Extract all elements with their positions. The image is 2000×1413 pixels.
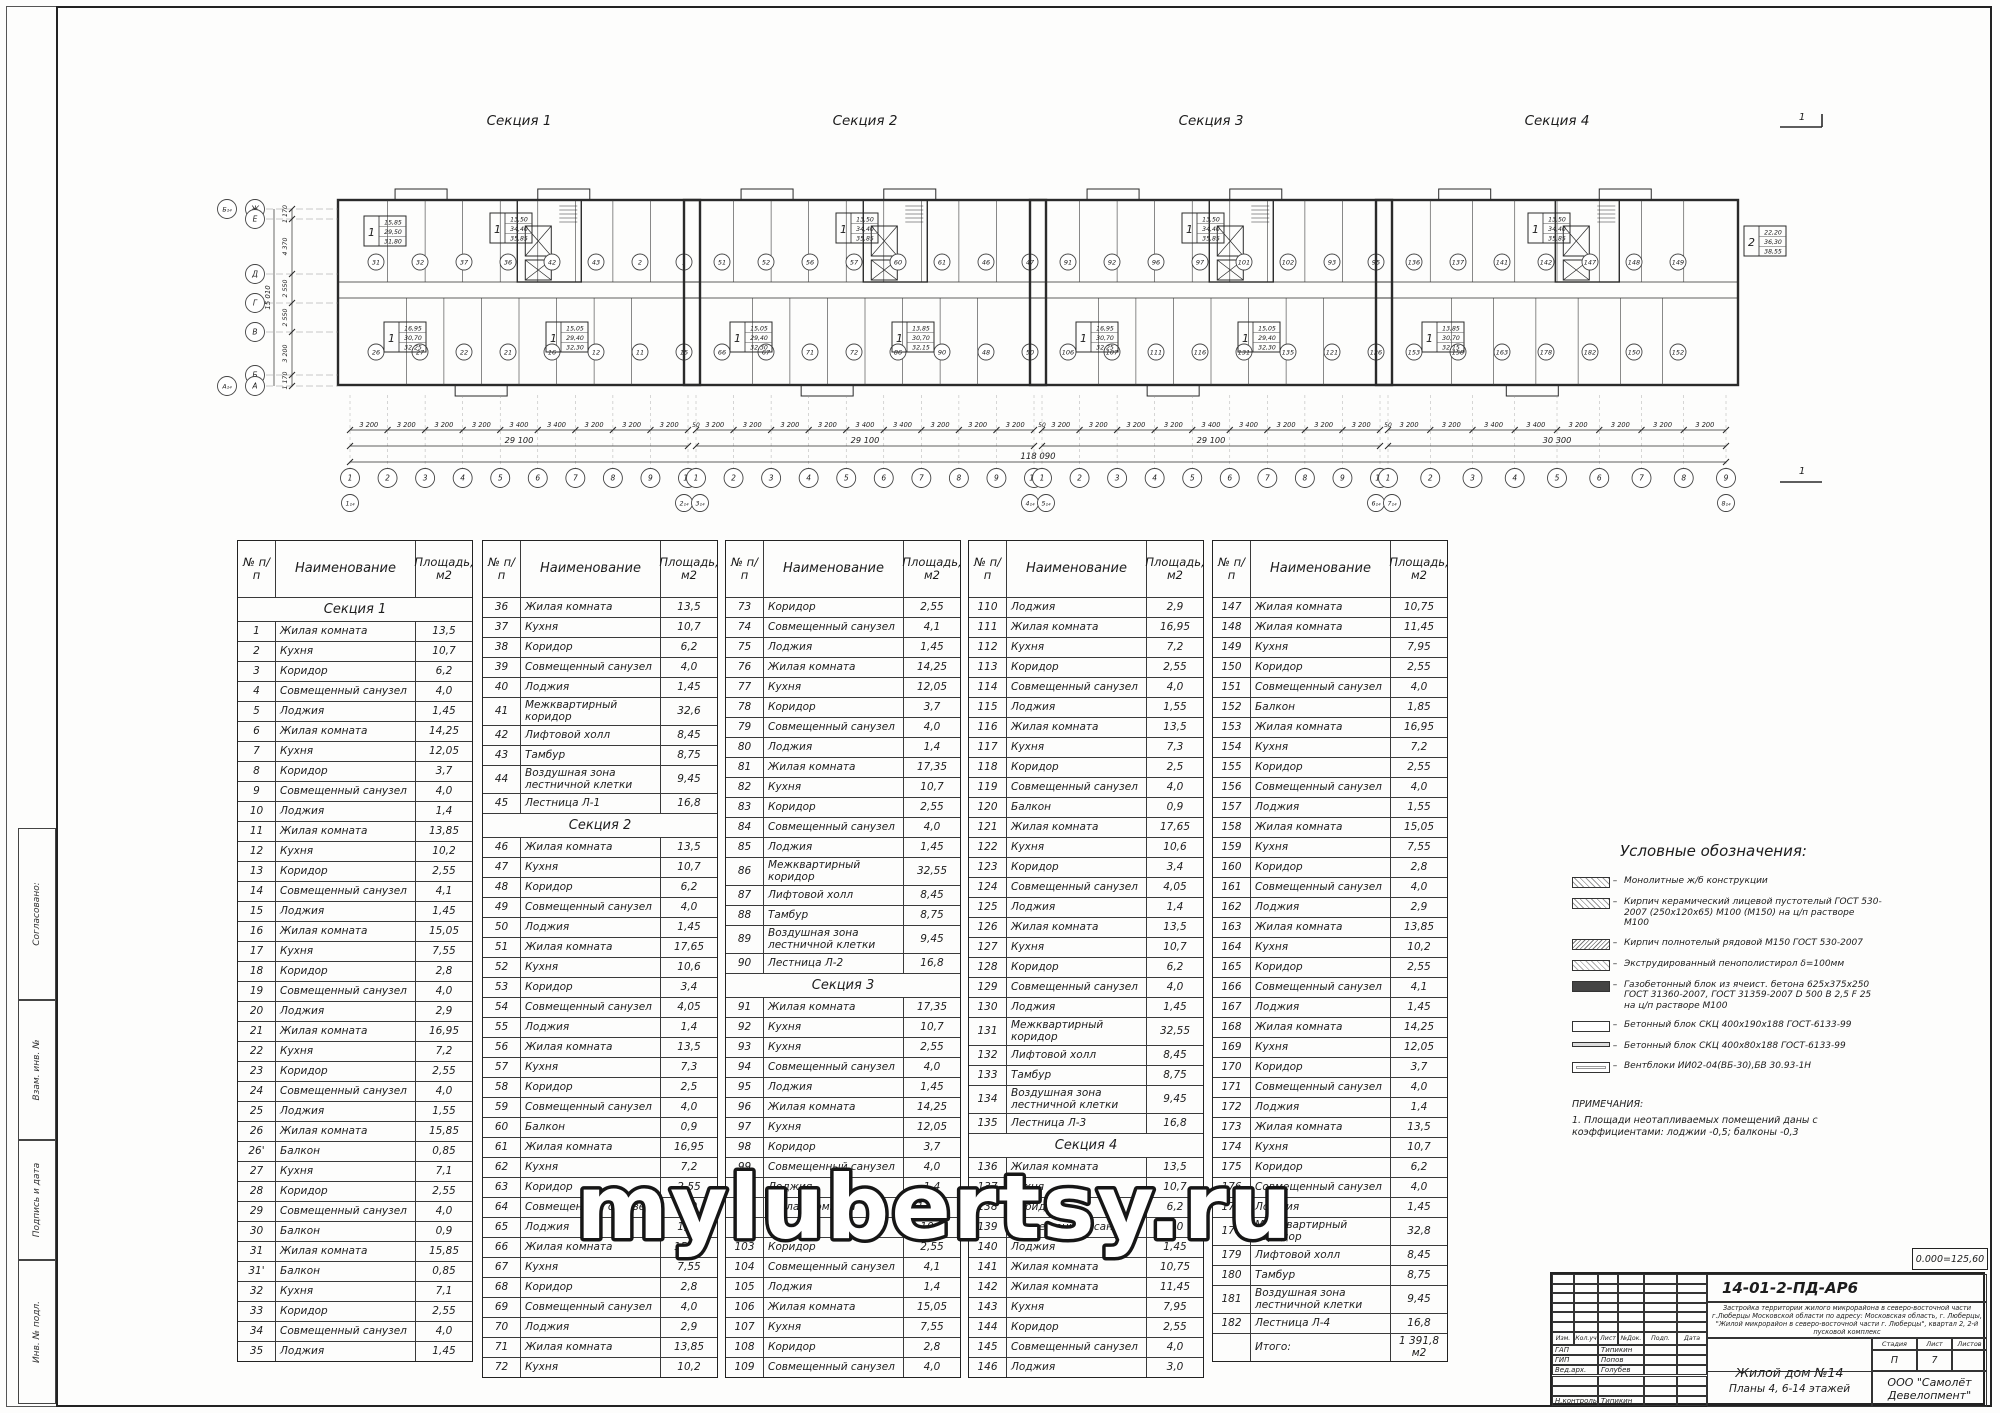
column-header: Площадь, м2 [1146, 541, 1203, 597]
table-row: 181Воздушная зона лестничной клетки9,45 [1213, 1285, 1447, 1313]
svg-text:9: 9 [994, 474, 999, 483]
table-row: 36Жилая комната13,5 [483, 597, 717, 617]
svg-text:8: 8 [1302, 474, 1307, 483]
table-cell: 145 [969, 1338, 1006, 1357]
sign-grid-cell [1618, 1284, 1644, 1294]
stage-value: П [1872, 1350, 1917, 1371]
table-cell: Жилая комната [275, 722, 415, 741]
column-header: Наименование [1006, 541, 1146, 597]
svg-text:38,55: 38,55 [1764, 249, 1782, 256]
table-cell: Лоджия [275, 1002, 415, 1021]
table-cell: 15 [238, 902, 275, 921]
svg-text:72: 72 [850, 348, 858, 356]
table-cell: 125 [969, 898, 1006, 917]
table-row: 140Лоджия1,45 [969, 1237, 1203, 1257]
svg-text:5: 5 [1555, 474, 1560, 483]
svg-text:7: 7 [1265, 474, 1270, 483]
table-cell: 179 [1213, 1246, 1250, 1265]
svg-text:93: 93 [1328, 258, 1336, 266]
table-cell: Лоджия [275, 802, 415, 821]
table-cell: Коридор [520, 978, 660, 997]
table-cell: 5 [238, 702, 275, 721]
room-table-2: № п/пНаименованиеПлощадь, м236Жилая комн… [482, 540, 718, 1378]
table-cell: 60 [483, 1118, 520, 1137]
table-row: 91Жилая комната17,35 [726, 997, 960, 1017]
svg-text:3 200: 3 200 [931, 421, 950, 429]
table-cell: 152 [1213, 698, 1250, 717]
table-row: 25Лоджия1,55 [238, 1101, 472, 1121]
table-row: 123Коридор3,4 [969, 857, 1203, 877]
table-cell: 32,55 [903, 858, 960, 885]
table-row: 34Совмещенный санузел4,0 [238, 1321, 472, 1341]
svg-text:9: 9 [1724, 474, 1729, 483]
table-cell: 94 [726, 1058, 763, 1077]
table-row: 122Кухня10,6 [969, 837, 1203, 857]
table-cell: 178 [1213, 1218, 1250, 1245]
table-cell: 182 [1213, 1314, 1250, 1333]
table-cell: Лоджия [763, 738, 903, 757]
table-cell: Межквартирный коридор [520, 698, 660, 725]
sign-grid-cell [1618, 1293, 1644, 1303]
svg-text:22: 22 [460, 348, 468, 356]
table-cell: Лоджия [275, 1102, 415, 1121]
svg-text:3 200: 3 200 [968, 421, 987, 429]
table-row: 27Кухня7,1 [238, 1161, 472, 1181]
column-header: Наименование [1250, 541, 1390, 597]
table-cell: 7,2 [1146, 638, 1203, 657]
sign-grid-cell [1598, 1312, 1618, 1322]
table-row: 115Лоджия1,55 [969, 697, 1203, 717]
table-row: 144Коридор2,55 [969, 1317, 1203, 1337]
table-cell: Совмещенный санузел [275, 882, 415, 901]
table-cell: Совмещенный санузел [763, 1058, 903, 1077]
svg-text:3₁₄: 3₁₄ [695, 500, 705, 507]
table-cell: Коридор [520, 1178, 660, 1197]
signature-role: ГИП [1552, 1355, 1598, 1365]
table-cell: 138 [969, 1198, 1006, 1217]
svg-text:Секция 3: Секция 3 [1179, 113, 1244, 129]
table-row: 173Жилая комната13,5 [1213, 1117, 1447, 1137]
table-cell: 91 [726, 998, 763, 1017]
table-cell: Коридор [1006, 958, 1146, 977]
signature-sign [1644, 1396, 1677, 1406]
table-row: 98Коридор3,7 [726, 1137, 960, 1157]
table-cell: 132 [969, 1046, 1006, 1065]
table-cell: Кухня [520, 958, 660, 977]
sign-grid-header: №Док. [1618, 1332, 1644, 1345]
table-cell: 31 [238, 1242, 275, 1261]
table-cell: 70 [483, 1318, 520, 1337]
side-label-box: Инв. № подл. [18, 1260, 56, 1404]
table-row: 116Жилая комната13,5 [969, 717, 1203, 737]
signature-sign [1644, 1386, 1677, 1396]
sign-grid-cell [1677, 1303, 1707, 1313]
table-row: 130Лоджия1,45 [969, 997, 1203, 1017]
table-cell: 7,55 [660, 1258, 717, 1277]
table-row: 67Кухня7,55 [483, 1257, 717, 1277]
table-cell: Коридор [520, 638, 660, 657]
table-cell: 2,8 [1390, 858, 1447, 877]
table-row: Итого:1 391,8 м2 [1213, 1333, 1447, 1361]
table-cell: 17,35 [903, 998, 960, 1017]
table-cell: 13,5 [660, 598, 717, 617]
table-row: 32Кухня7,1 [238, 1281, 472, 1301]
table-row: 1Жилая комната13,5 [238, 621, 472, 641]
table-cell: 123 [969, 858, 1006, 877]
svg-text:71: 71 [806, 348, 814, 356]
table-row: 43Тамбур8,75 [483, 745, 717, 765]
svg-text:5: 5 [498, 474, 503, 483]
table-row: 9Совмещенный санузел4,0 [238, 781, 472, 801]
table-cell: 4,0 [415, 982, 472, 1001]
table-cell: 13,5 [660, 1038, 717, 1057]
table-cell: 2,55 [415, 1062, 472, 1081]
table-row: 23Коридор2,55 [238, 1061, 472, 1081]
table-cell: 4,0 [1146, 978, 1203, 997]
table-cell: Совмещенный санузел [1006, 1338, 1146, 1357]
table-cell: Совмещенный санузел [1250, 1078, 1390, 1097]
table-cell: 137 [969, 1178, 1006, 1197]
table-row: 105Лоджия1,4 [726, 1277, 960, 1297]
table-cell: 105 [726, 1278, 763, 1297]
table-cell: 11 [238, 822, 275, 841]
table-cell: Жилая комната [763, 1298, 903, 1317]
table-cell: Кухня [1250, 938, 1390, 957]
table-cell: 144 [969, 1318, 1006, 1337]
table-cell: 122 [969, 838, 1006, 857]
table-cell: Коридор [520, 878, 660, 897]
table-cell: 16,95 [1390, 718, 1447, 737]
table-cell: 4,0 [903, 718, 960, 737]
table-cell: 10,7 [660, 618, 717, 637]
svg-text:8: 8 [956, 474, 961, 483]
table-cell: 1,4 [1390, 1098, 1447, 1117]
table-cell: 174 [1213, 1138, 1250, 1157]
signature-sign [1644, 1376, 1677, 1386]
table-cell: Жилая комната [1250, 1118, 1390, 1137]
table-cell: 18 [238, 962, 275, 981]
table-cell: Жилая комната [275, 822, 415, 841]
table-cell: 47 [483, 858, 520, 877]
svg-text:3 400: 3 400 [1202, 421, 1221, 429]
table-row: 110Лоджия2,9 [969, 597, 1203, 617]
table-cell: 1,4 [903, 1178, 960, 1197]
table-cell: Коридор [1250, 958, 1390, 977]
svg-text:2₁₄: 2₁₄ [679, 500, 689, 507]
svg-text:96: 96 [1152, 258, 1160, 266]
table-cell: 43 [483, 746, 520, 765]
table-row: 79Совмещенный санузел4,0 [726, 717, 960, 737]
svg-text:3 400: 3 400 [547, 421, 566, 429]
table-cell: Совмещенный санузел [275, 782, 415, 801]
svg-text:8₁₄: 8₁₄ [1721, 500, 1731, 507]
table-cell: 66 [483, 1238, 520, 1257]
table-row: 158Жилая комната15,05 [1213, 817, 1447, 837]
svg-text:1: 1 [1426, 332, 1433, 345]
table-cell: 13 [238, 862, 275, 881]
legend-dash: – [1610, 897, 1620, 907]
table-cell: 143 [969, 1298, 1006, 1317]
table-cell: 4,1 [903, 618, 960, 637]
table-cell: 49 [483, 898, 520, 917]
svg-text:Секция 2: Секция 2 [833, 113, 898, 129]
table-row: 40Лоджия1,45 [483, 677, 717, 697]
table-row: 145Совмещенный санузел4,0 [969, 1337, 1203, 1357]
table-cell: 32,55 [1146, 1018, 1203, 1045]
table-cell: 117 [969, 738, 1006, 757]
table-row: 151Совмещенный санузел4,0 [1213, 677, 1447, 697]
table-cell: Кухня [763, 1118, 903, 1137]
svg-text:1: 1 [840, 223, 847, 236]
table-row: 83Коридор2,55 [726, 797, 960, 817]
table-cell: Жилая комната [1006, 718, 1146, 737]
table-cell: 0,85 [415, 1142, 472, 1161]
table-cell: 12,05 [903, 678, 960, 697]
table-cell: 164 [1213, 938, 1250, 957]
legend-title: Условные обозначения: [1620, 842, 1882, 860]
table-row: 103Коридор2,55 [726, 1237, 960, 1257]
sign-grid-cell [1574, 1293, 1598, 1303]
cross-hatch-swatch [1572, 960, 1610, 971]
table-cell: 17,65 [660, 938, 717, 957]
table-cell: 32 [238, 1282, 275, 1301]
svg-text:15,05: 15,05 [1258, 326, 1276, 333]
table-row: 51Жилая комната17,65 [483, 937, 717, 957]
table-cell: 161 [1213, 878, 1250, 897]
table-row: 73Коридор2,55 [726, 597, 960, 617]
table-row: 45Лестница Л-116,8 [483, 793, 717, 813]
table-cell: 65 [483, 1218, 520, 1237]
table-cell: Кухня [763, 678, 903, 697]
svg-text:118 090: 118 090 [1020, 452, 1055, 462]
side-label: Подпись и дата [32, 1163, 42, 1238]
svg-text:1 170: 1 170 [282, 371, 289, 389]
table-cell: Лоджия [763, 1278, 903, 1297]
sign-grid-cell [1552, 1312, 1574, 1322]
table-cell: 8 [238, 762, 275, 781]
table-cell: 16,95 [415, 1022, 472, 1041]
table-cell: Лоджия [1250, 1198, 1390, 1217]
table-cell: 41 [483, 698, 520, 725]
sign-grid-cell [1677, 1274, 1707, 1284]
table-row: 2Кухня10,7 [238, 641, 472, 661]
svg-text:43: 43 [592, 258, 600, 266]
table-row: 48Коридор6,2 [483, 877, 717, 897]
svg-text:148: 148 [1628, 258, 1640, 266]
table-cell: 6,2 [1146, 1198, 1203, 1217]
svg-text:13,50: 13,50 [1202, 217, 1220, 224]
table-cell: Кухня [275, 1282, 415, 1301]
table-cell: 10,7 [1146, 1178, 1203, 1197]
svg-text:106: 106 [1062, 348, 1074, 356]
table-row: 54Совмещенный санузел4,05 [483, 997, 717, 1017]
table-row: 69Совмещенный санузел4,0 [483, 1297, 717, 1317]
table-cell: 142 [969, 1278, 1006, 1297]
table-cell: Коридор [1250, 758, 1390, 777]
svg-text:2 550: 2 550 [282, 279, 289, 297]
svg-text:3: 3 [1470, 474, 1475, 483]
table-cell: 4,1 [415, 882, 472, 901]
sign-grid-cell [1677, 1312, 1707, 1322]
table-cell: 1,45 [903, 638, 960, 657]
sign-grid-cell [1644, 1312, 1677, 1322]
sign-grid-cell [1598, 1322, 1618, 1332]
table-header-row: № п/пНаименованиеПлощадь, м2 [1213, 541, 1447, 597]
table-cell: Совмещенный санузел [520, 1198, 660, 1217]
svg-text:34,40: 34,40 [1548, 226, 1566, 233]
svg-text:35,85: 35,85 [1548, 236, 1566, 243]
table-cell: 2,55 [903, 598, 960, 617]
svg-text:4: 4 [1152, 474, 1157, 483]
table-cell: Лоджия [1006, 1238, 1146, 1257]
svg-text:35,85: 35,85 [1202, 236, 1220, 243]
title-block: Изм.Кол.учЛист№Док.Подп.ДатаГАПТипикинГИ… [1550, 1272, 1985, 1405]
table-row: 80Лоджия1,4 [726, 737, 960, 757]
sign-grid-cell [1644, 1293, 1677, 1303]
table-row: 72Кухня10,2 [483, 1357, 717, 1377]
table-row: 97Кухня12,05 [726, 1117, 960, 1137]
column-header: Площадь, м2 [903, 541, 960, 597]
table-cell: 1,45 [1390, 1198, 1447, 1217]
sign-grid-cell [1618, 1322, 1644, 1332]
table-cell: 16 [238, 922, 275, 941]
table-cell: 4,0 [903, 1158, 960, 1177]
table-cell: Жилая комната [763, 1098, 903, 1117]
table-cell: 92 [726, 1018, 763, 1037]
legend-item-text: Бетонный блок СКЦ 400х190х188 ГОСТ-6133-… [1624, 1020, 1851, 1031]
table-row: 129Совмещенный санузел4,0 [969, 977, 1203, 997]
table-cell: 64 [483, 1198, 520, 1217]
table-cell: Кухня [520, 1258, 660, 1277]
table-cell: 9,45 [1390, 1286, 1447, 1313]
sign-grid-cell [1574, 1284, 1598, 1294]
svg-text:26: 26 [372, 348, 380, 356]
table-cell: 1,4 [660, 1018, 717, 1037]
table-cell: 16,8 [660, 794, 717, 813]
table-cell: 2 [238, 642, 275, 661]
svg-text:35,85: 35,85 [510, 236, 528, 243]
legend-item: –Кирпич полнотелый рядовой М150 ГОСТ 530… [1572, 938, 1882, 950]
legend-dash: – [1610, 1041, 1620, 1051]
table-cell: 102 [726, 1218, 763, 1237]
svg-text:2: 2 [1428, 474, 1433, 483]
legend-item: –Газобетонный блок из ячеист. бетона 625… [1572, 980, 1882, 1012]
svg-text:2: 2 [731, 474, 736, 483]
table-cell: Совмещенный санузел [1006, 678, 1146, 697]
table-cell: 2,9 [660, 1318, 717, 1337]
table-cell: 7,3 [660, 1058, 717, 1077]
svg-text:34,40: 34,40 [856, 226, 874, 233]
table-cell: 42 [483, 726, 520, 745]
svg-text:3 200: 3 200 [743, 421, 762, 429]
signature-role [1552, 1386, 1598, 1396]
table-row: 143Кухня7,95 [969, 1297, 1203, 1317]
table-cell: 4,0 [660, 1198, 717, 1217]
table-cell: Жилая комната [1006, 618, 1146, 637]
svg-text:3 200: 3 200 [1314, 421, 1333, 429]
side-label-box: Взам. инв. № [18, 1000, 56, 1140]
table-cell: Лестница Л-1 [520, 794, 660, 813]
table-cell: Жилая комната [275, 1022, 415, 1041]
table-header-row: № п/пНаименованиеПлощадь, м2 [969, 541, 1203, 597]
svg-text:3 200: 3 200 [1277, 421, 1296, 429]
table-row: 89Воздушная зона лестничной клетки9,45 [726, 925, 960, 953]
signature-name: Типикин [1598, 1345, 1644, 1355]
table-cell: Коридор [763, 1338, 903, 1357]
table-cell: 4,0 [415, 1082, 472, 1101]
table-cell: 8,45 [660, 726, 717, 745]
table-cell: 1 [238, 622, 275, 641]
elevation-mark: 0.000=125,60 [1912, 1248, 1988, 1270]
table-cell: Лоджия [1250, 898, 1390, 917]
sign-grid-cell [1618, 1274, 1644, 1284]
svg-text:3 200: 3 200 [434, 421, 453, 429]
table-cell: 79 [726, 718, 763, 737]
table-cell: 4,0 [1146, 1218, 1203, 1237]
sign-grid-cell [1598, 1274, 1618, 1284]
table-cell: Балкон [1250, 698, 1390, 717]
table-cell: 2,55 [415, 1182, 472, 1201]
svg-text:Е: Е [253, 215, 258, 224]
table-cell: 1,4 [903, 738, 960, 757]
table-cell: 10,7 [903, 1018, 960, 1037]
table-cell: 151 [1213, 678, 1250, 697]
table-cell: Жилая комната [520, 1038, 660, 1057]
signature-name: Голубев [1598, 1365, 1644, 1375]
table-cell: 24 [238, 1082, 275, 1101]
table-cell: 13,5 [1146, 718, 1203, 737]
table-cell: 4,0 [1146, 1338, 1203, 1357]
svg-text:Д: Д [251, 270, 258, 279]
column-header: Площадь, м2 [660, 541, 717, 597]
svg-text:32,15: 32,15 [1442, 345, 1460, 352]
table-cell: Тамбур [1250, 1266, 1390, 1285]
table-cell: 4,0 [660, 658, 717, 677]
table-row: 117Кухня7,3 [969, 737, 1203, 757]
table-cell: 1 391,8 м2 [1390, 1334, 1447, 1361]
table-cell: 150 [1213, 658, 1250, 677]
table-cell: Воздушная зона лестничной клетки [520, 766, 660, 793]
table-cell: 3,4 [660, 978, 717, 997]
table-cell: 113 [969, 658, 1006, 677]
table-cell: 7,2 [660, 1158, 717, 1177]
table-cell: 115 [969, 698, 1006, 717]
table-row: 139Совмещенный санузел4,0 [969, 1217, 1203, 1237]
svg-text:36: 36 [504, 258, 512, 266]
svg-text:30,70: 30,70 [1096, 335, 1114, 342]
table-row: 175Коридор6,2 [1213, 1157, 1447, 1177]
table-cell: 155 [1213, 758, 1250, 777]
svg-text:13,85: 13,85 [912, 326, 930, 333]
table-cell: Коридор [763, 1138, 903, 1157]
table-row: 28Коридор2,55 [238, 1181, 472, 1201]
svg-text:16,95: 16,95 [404, 326, 422, 333]
sign-grid-cell [1552, 1322, 1574, 1332]
svg-text:66: 66 [718, 348, 726, 356]
table-cell: 10,7 [903, 778, 960, 797]
svg-text:1: 1 [388, 332, 395, 345]
table-cell: Коридор [1250, 658, 1390, 677]
table-cell: 16,95 [660, 1138, 717, 1157]
table-cell: Совмещенный санузел [1006, 778, 1146, 797]
outline-swatch [1572, 1021, 1610, 1032]
svg-text:149: 149 [1672, 258, 1684, 266]
sign-grid-cell [1677, 1322, 1707, 1332]
table-cell: 13,85 [1390, 918, 1447, 937]
table-cell: Лоджия [275, 1342, 415, 1361]
table-cell: 13,5 [1146, 918, 1203, 937]
table-cell: Кухня [275, 942, 415, 961]
